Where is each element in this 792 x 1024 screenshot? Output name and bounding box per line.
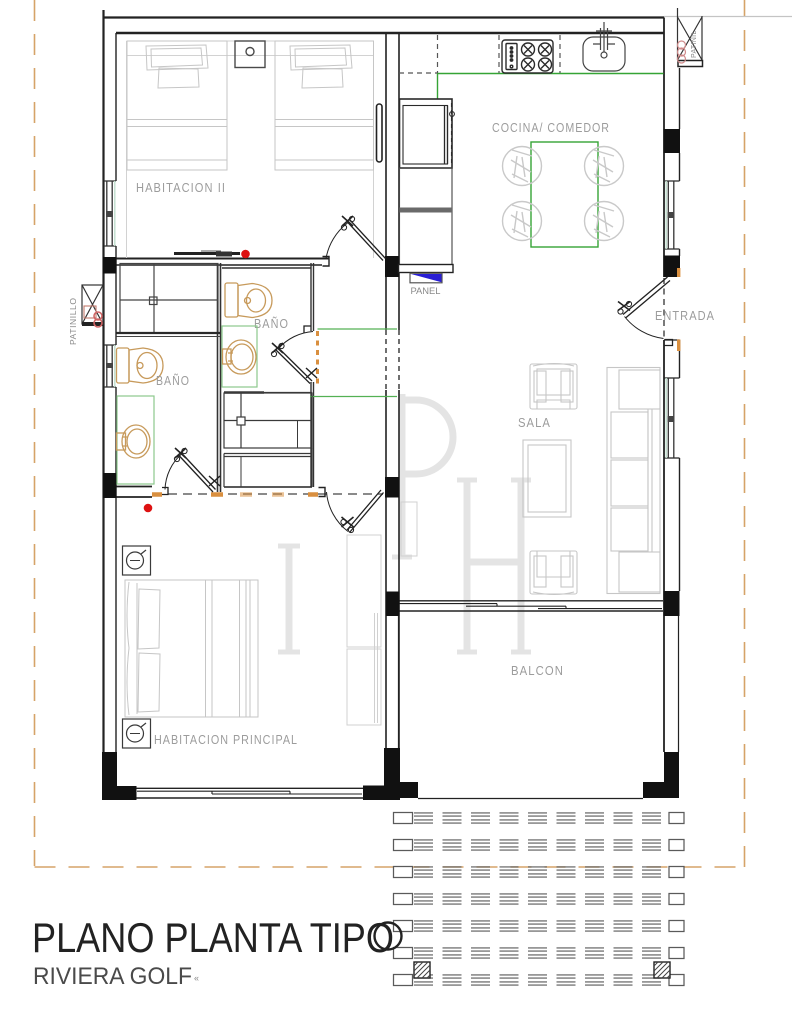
svg-text:HABITACION II: HABITACION II	[136, 181, 226, 195]
svg-text:SALA: SALA	[518, 415, 551, 430]
svg-text:RIVIERA GOLF: RIVIERA GOLF	[33, 963, 192, 990]
svg-text:PATINIL: PATINIL	[691, 30, 698, 58]
svg-text:COCINA/ COMEDOR: COCINA/ COMEDOR	[492, 120, 610, 135]
svg-text:HABITACION PRINCIPAL: HABITACION PRINCIPAL	[154, 732, 298, 747]
svg-text:PANEL: PANEL	[411, 286, 441, 297]
svg-text:BAÑO: BAÑO	[156, 374, 190, 388]
svg-text:«: «	[194, 973, 199, 983]
svg-text:ENTRADA: ENTRADA	[655, 309, 715, 323]
svg-text:PATINILLO: PATINILLO	[68, 297, 78, 345]
svg-text:PLANO PLANTA TIPO: PLANO PLANTA TIPO	[32, 914, 394, 961]
svg-text:BALCON: BALCON	[511, 664, 564, 678]
svg-text:BAÑO: BAÑO	[254, 317, 289, 331]
